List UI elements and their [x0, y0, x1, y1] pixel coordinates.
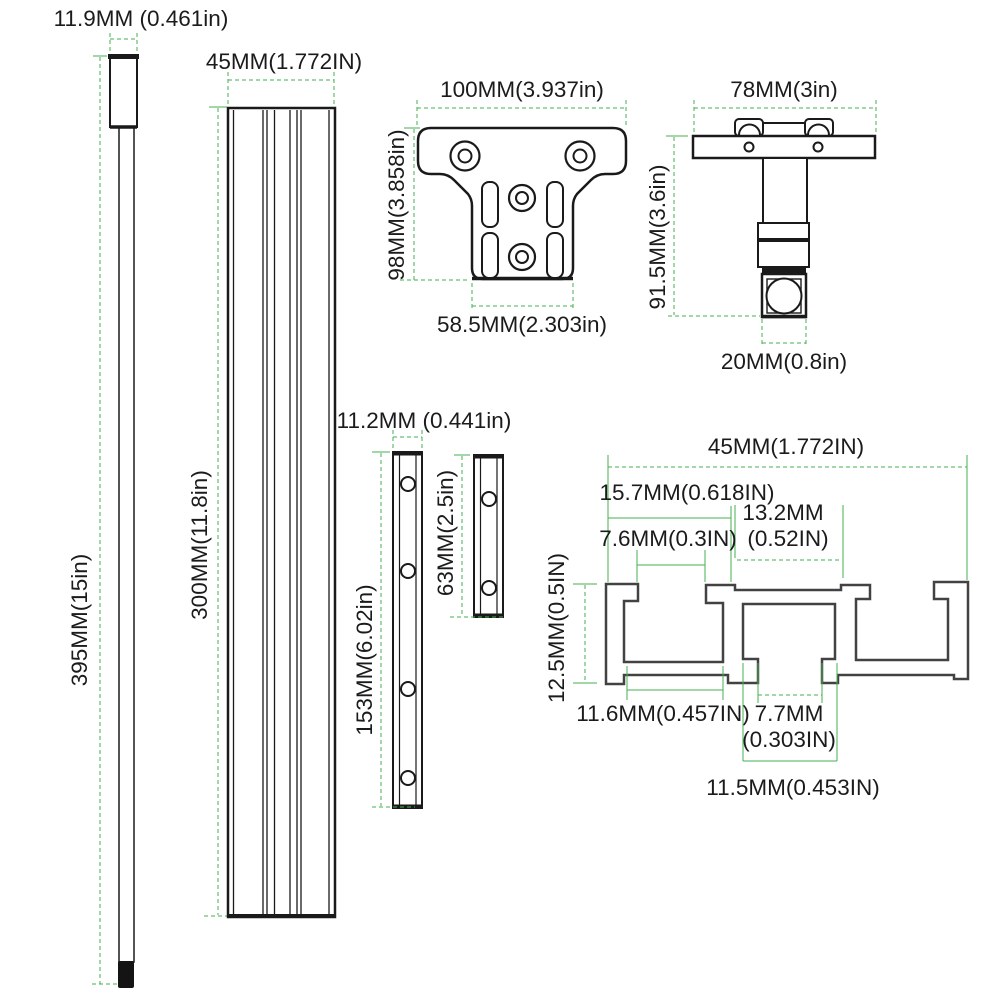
rod-body	[119, 127, 134, 962]
bracket-slot	[547, 182, 563, 227]
bar-hole	[401, 564, 415, 578]
track-view: 45MM(1.772IN) 300MM(11.8in)	[187, 49, 362, 917]
dimension-diagram: 11.9MM (0.461in) 395MM(15in) 45MM(1.772I…	[0, 0, 1000, 1000]
profile-center-outer-label: 11.5MM(0.453IN)	[706, 775, 879, 800]
clamp-plate	[693, 136, 875, 158]
bracket-base-label: 58.5MM(2.303in)	[437, 312, 607, 337]
bars-view: 11.2MM (0.441in) 153MM(6.02in) 63MM(2.5i…	[337, 408, 512, 808]
profile-center-opening-label-2: (0.303IN)	[742, 727, 836, 752]
bracket-height-label: 98MM(3.858in)	[384, 129, 409, 280]
clamp-nut-band	[758, 241, 809, 267]
bracket-slot	[547, 233, 563, 278]
rod-threaded-tip	[118, 961, 134, 988]
bar-hole	[482, 581, 496, 595]
profile-top-recess-label-1: 13.2MM	[742, 500, 823, 525]
bar-hole	[401, 477, 415, 491]
clamp-foot-hole	[767, 279, 802, 314]
profile-view: 45MM(1.772IN) 15.7MM(0.618IN) 13.2MM (0.…	[544, 434, 968, 800]
bar-hole	[482, 492, 496, 506]
rod-length-label: 395MM(15in)	[67, 554, 92, 687]
bar-hole	[401, 771, 415, 785]
long-bar	[393, 452, 422, 808]
bracket-slot	[482, 182, 498, 227]
profile-slot-opening-label: 7.6MM(0.3IN)	[599, 526, 737, 551]
clamp-height-label: 91.5MM(3.6in)	[645, 164, 670, 309]
clamp-stem	[763, 158, 807, 223]
profile-outline	[606, 582, 968, 684]
rod-cap	[110, 55, 137, 127]
bars-width-label: 11.2MM (0.441in)	[337, 408, 512, 433]
track-body	[228, 108, 335, 917]
profile-channel-width-label: 11.6MM(0.457IN)	[576, 701, 749, 726]
clamp-plate-hole	[745, 143, 754, 152]
profile-center-opening-label-1: 7.7MM	[755, 701, 824, 726]
clamp-plate-hole	[814, 143, 823, 152]
clamp-width-label: 78MM(3in)	[730, 77, 838, 102]
track-length-label: 300MM(11.8in)	[187, 470, 212, 620]
profile-height-label: 12.5MM(0.5IN)	[544, 553, 569, 703]
clamp-view: 78MM(3in) 91.5MM(3.6in) 20MM(0.8in)	[645, 77, 876, 374]
clamp-foot-label: 20MM(0.8in)	[721, 349, 847, 374]
long-bar-label: 153MM(6.02in)	[352, 584, 377, 735]
clamp-nut-band	[758, 223, 809, 239]
track-width-label: 45MM(1.772IN)	[206, 49, 362, 74]
profile-top-recess-label-2: (0.52IN)	[747, 526, 828, 551]
bracket-view: 100MM(3.937in) 98MM(3.858in) 58.5MM(2.30…	[384, 77, 626, 337]
bracket-width-label: 100MM(3.937in)	[440, 77, 604, 102]
diagram-canvas: 11.9MM (0.461in) 395MM(15in) 45MM(1.772I…	[0, 0, 1000, 1000]
profile-overall-width-label: 45MM(1.772IN)	[708, 434, 864, 459]
short-bar-label: 63MM(2.5in)	[433, 470, 458, 596]
rod-width-label: 11.9MM (0.461in)	[54, 6, 229, 31]
bar-hole	[401, 682, 415, 696]
bracket-slot	[482, 233, 498, 278]
